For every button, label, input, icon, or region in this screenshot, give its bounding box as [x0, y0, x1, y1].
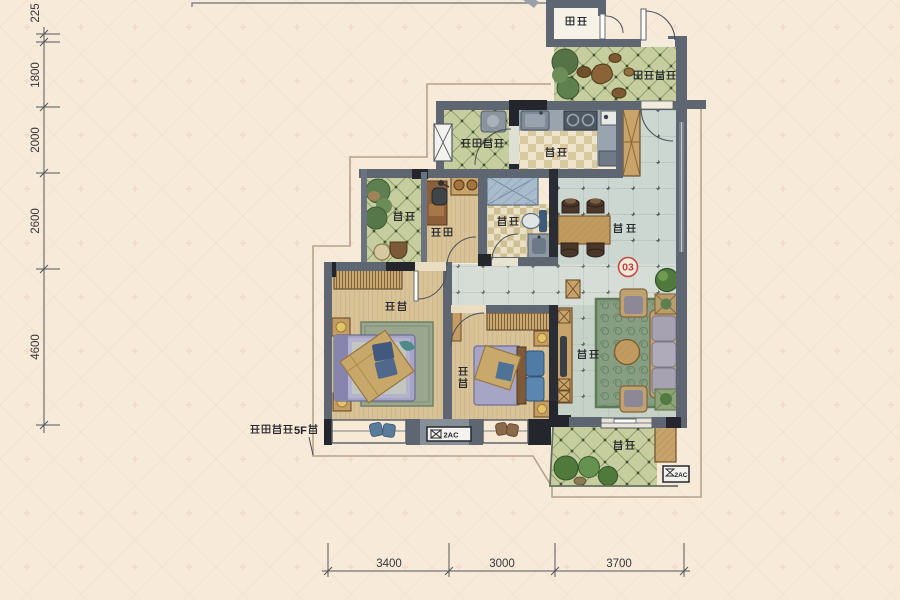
svg-text:03: 03	[622, 262, 634, 274]
svg-text:2600: 2600	[30, 208, 42, 234]
svg-text:1800: 1800	[30, 62, 42, 88]
svg-text:2AC: 2AC	[443, 431, 459, 440]
svg-text:3000: 3000	[489, 558, 515, 570]
svg-text:3700: 3700	[606, 558, 632, 570]
svg-text:3400: 3400	[376, 558, 402, 570]
svg-text:4600: 4600	[30, 334, 42, 360]
svg-text:5F: 5F	[294, 425, 307, 437]
svg-text:2AC: 2AC	[674, 472, 687, 479]
svg-text:225: 225	[30, 3, 42, 22]
svg-text:2000: 2000	[30, 127, 42, 153]
